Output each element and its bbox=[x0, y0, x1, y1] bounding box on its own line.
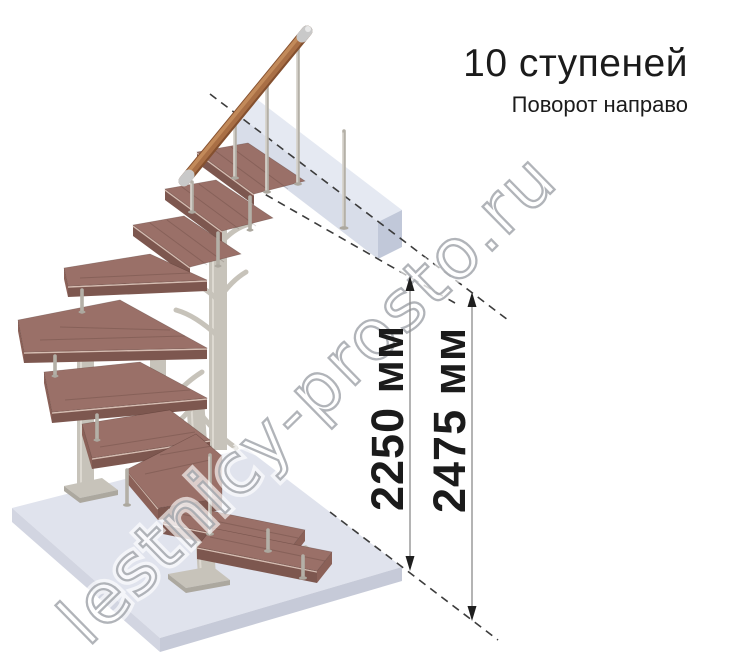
page-subtitle: Поворот направо bbox=[463, 93, 688, 117]
dimension-label-outer: 2475 мм bbox=[424, 327, 475, 513]
arrow-down-2250 bbox=[406, 556, 415, 571]
step-tread-5-winder bbox=[44, 362, 207, 423]
staircase-diagram-page: lestnicy-prosto.ru lestnicy-prosto.ru 22… bbox=[0, 0, 744, 655]
page-title: 10 ступеней bbox=[463, 44, 688, 85]
handrail-end-cap bbox=[184, 175, 189, 181]
handrail-top-cap bbox=[302, 31, 307, 37]
heading-block: 10 ступеней Поворот направо bbox=[463, 44, 688, 117]
dimension-label-inner: 2250 мм bbox=[362, 325, 413, 511]
